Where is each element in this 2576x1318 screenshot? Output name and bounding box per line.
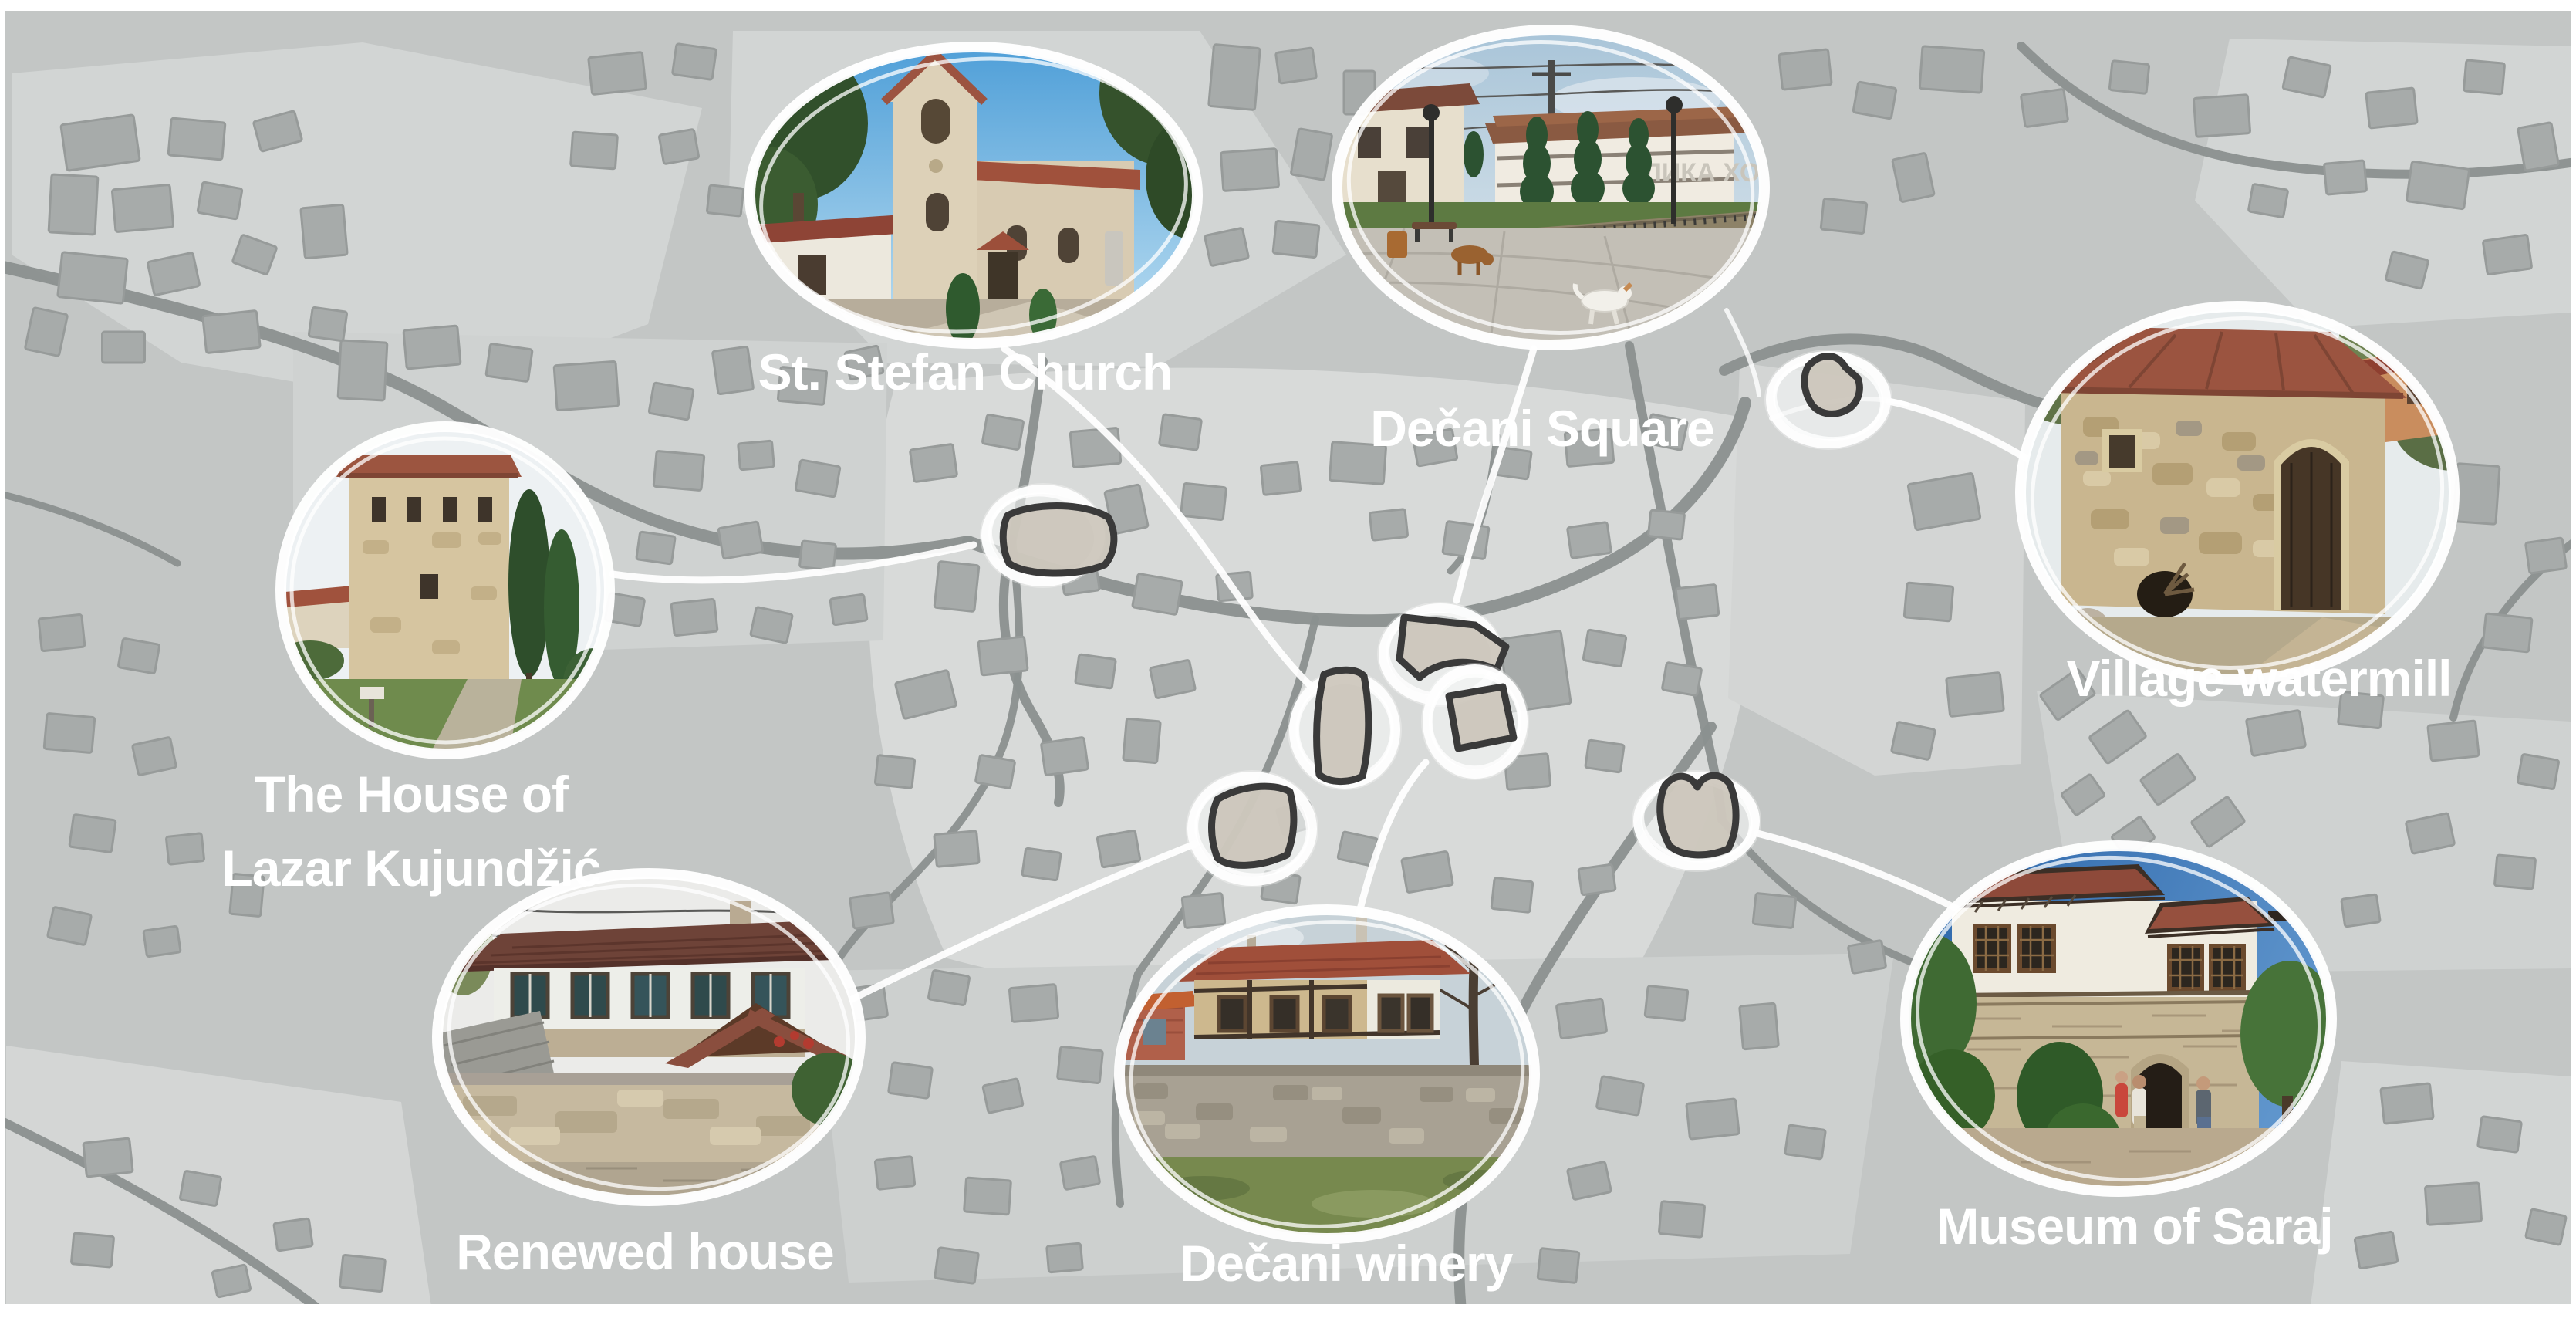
building-footprint [1123,718,1161,763]
building-footprint [2525,538,2566,573]
building-footprint [1047,1243,1083,1272]
building-footprint [1662,662,1702,695]
building-footprint [1556,999,1607,1039]
building-footprint [712,346,753,394]
building-footprint [849,893,893,929]
building-footprint [338,340,387,400]
building-footprint [934,831,979,867]
figure-margin-left [0,0,5,1318]
building-footprint [1578,864,1615,895]
building-footprint [1057,1046,1102,1083]
building-footprint [203,310,261,353]
figure-margin-bottom [0,1304,2576,1318]
building-footprint [2406,161,2470,209]
building-footprint [58,252,128,304]
building-footprint [1908,473,1980,530]
building-footprint [2494,855,2535,889]
site-building-outline-museum-saraj [1660,776,1736,855]
building-footprint [166,833,204,865]
building-footprint [1097,830,1140,867]
building-footprint [659,129,699,164]
building-footprint [1753,893,1796,928]
building-footprint [2477,1117,2521,1153]
building-footprint [1904,583,1953,621]
building-footprint [132,737,176,776]
building-footprint [1740,1003,1779,1049]
building-footprint [982,414,1024,450]
label-lazar-house-line2: Lazar Kujundžić [221,840,600,897]
building-footprint [738,441,775,470]
site-marker-stefan-church [1288,670,1402,790]
building-footprint [198,182,242,219]
building-footprint [2366,88,2417,128]
label-lazar-house-line1: The House of [255,765,569,823]
building-footprint [2463,60,2504,94]
building-footprint [1022,848,1062,880]
heritage-map-figure: ЛИКА ХОЧА [0,0,2576,1318]
building-footprint [61,115,140,171]
figure-margin-top [0,0,2576,11]
building-footprint [71,1233,113,1267]
building-footprint [44,713,95,752]
building-footprint [2324,161,2366,194]
building-footprint [2355,1232,2398,1269]
site-marker-village-watermill [1764,350,1892,450]
building-footprint [975,755,1015,788]
building-footprint [2526,1209,2567,1245]
building-footprint [2453,464,2500,525]
building-footprint [718,522,763,559]
building-footprint [1209,45,1261,110]
building-footprint [1919,46,1984,93]
building-footprint [403,326,461,369]
building-footprint [309,307,347,341]
building-footprint [795,460,840,497]
building-footprint [672,44,716,80]
building-footprint [39,614,85,651]
label-stefan-church: St. Stefan Church [758,343,1173,400]
building-footprint [168,118,225,160]
building-footprint [2428,721,2479,761]
building-footprint [2341,894,2381,927]
building-footprint [83,1138,133,1177]
building-footprint [1583,630,1626,667]
building-footprint [1220,149,1278,191]
building-footprint [103,332,145,363]
building-footprint [1009,984,1058,1022]
building-footprint [1133,573,1183,614]
building-footprint [274,1218,313,1251]
building-footprint [47,907,91,945]
building-footprint [1891,722,1935,760]
photo-decani-winery [1112,907,1541,1244]
building-footprint [1491,877,1533,912]
label-museum-saraj: Museum of Saraj [1936,1198,2332,1255]
label-renewed-house: Renewed house [456,1223,833,1280]
site-marker-renewed-house [1186,770,1318,887]
building-footprint [554,361,619,410]
building-footprint [301,204,347,259]
building-footprint [212,1265,251,1297]
building-footprint [1075,654,1116,688]
village-map: ЛИКА ХОЧА [0,0,2576,1318]
building-footprint [1402,851,1453,893]
building-footprint [1273,221,1319,258]
building-footprint [1659,1201,1704,1238]
building-footprint [910,444,957,482]
building-footprint [934,561,979,611]
building-footprint [1567,1161,1611,1200]
building-footprint [571,132,618,169]
building-footprint [143,926,181,957]
building-footprint [1182,893,1225,928]
building-footprint [649,383,694,420]
building-footprint [2246,710,2305,755]
building-footprint [1686,1099,1739,1139]
site-building-outline-stefan-church [1317,670,1369,781]
building-footprint [49,174,98,235]
building-footprint [180,1171,221,1206]
building-footprint [1150,660,1195,698]
building-footprint [25,307,67,356]
building-footprint [875,755,915,789]
site-marker-museum-saraj [1632,770,1761,872]
building-footprint [69,814,116,852]
site-building-outline-renewed-house [1212,786,1294,865]
building-footprint [1676,584,1719,619]
building-footprint [1821,198,1867,234]
building-footprint [1275,48,1316,83]
building-footprint [1596,1076,1643,1116]
building-footprint [2517,123,2558,171]
building-footprint [707,185,744,216]
building-footprint [1159,414,1201,451]
building-footprint [486,343,532,381]
building-footprint [1261,462,1301,495]
building-footprint [830,594,867,625]
building-footprint [2109,61,2149,94]
building-footprint [1585,740,1625,772]
building-footprint [1853,82,1896,119]
building-footprint [964,1178,1011,1215]
building-footprint [1567,522,1611,559]
building-footprint [1946,672,2004,716]
building-footprint [2483,613,2532,652]
building-footprint [671,599,717,636]
building-footprint [1779,49,1832,90]
building-footprint [2021,89,2068,127]
building-footprint [934,1248,978,1284]
building-footprint [1785,1125,1826,1159]
building-footprint [636,532,676,564]
building-footprint [1070,428,1121,467]
site-marker-decani-winery [1421,663,1529,780]
building-footprint [1291,129,1332,181]
building-footprint [1645,985,1688,1020]
label-decani-winery: Dečani winery [1180,1235,1514,1292]
building-footprint [1848,940,1886,973]
label-village-watermill: Village watermill [2066,650,2451,707]
building-footprint [2425,1183,2481,1225]
building-footprint [112,184,174,231]
building-footprint [1648,510,1684,539]
building-footprint [888,1063,932,1099]
building-footprint [1538,1248,1579,1283]
building-footprint [1060,1156,1100,1189]
building-footprint [978,637,1028,675]
building-footprint [751,607,793,643]
building-footprint [1180,483,1226,520]
building-footprint [2381,1083,2433,1124]
building-footprint [983,1079,1023,1114]
building-footprint [928,970,970,1005]
building-footprint [2193,95,2250,137]
building-footprint [875,1157,915,1190]
site-building-outline-decani-winery [1449,687,1514,749]
building-footprint [339,1255,385,1292]
building-footprint [2483,235,2532,275]
label-decani-square: Dečani Square [1370,400,1714,457]
figure-margin-right [2571,0,2576,1318]
building-footprint [653,451,704,490]
building-footprint [2517,754,2559,789]
site-building-outline-lazar-house [1003,506,1114,574]
building-footprint [1369,509,1408,541]
building-footprint [118,638,160,674]
building-footprint [1041,737,1088,775]
building-footprint [1204,228,1248,266]
building-footprint [589,52,647,94]
building-footprint [1892,153,1935,202]
building-footprint [799,541,836,570]
building-footprint [2248,184,2288,217]
